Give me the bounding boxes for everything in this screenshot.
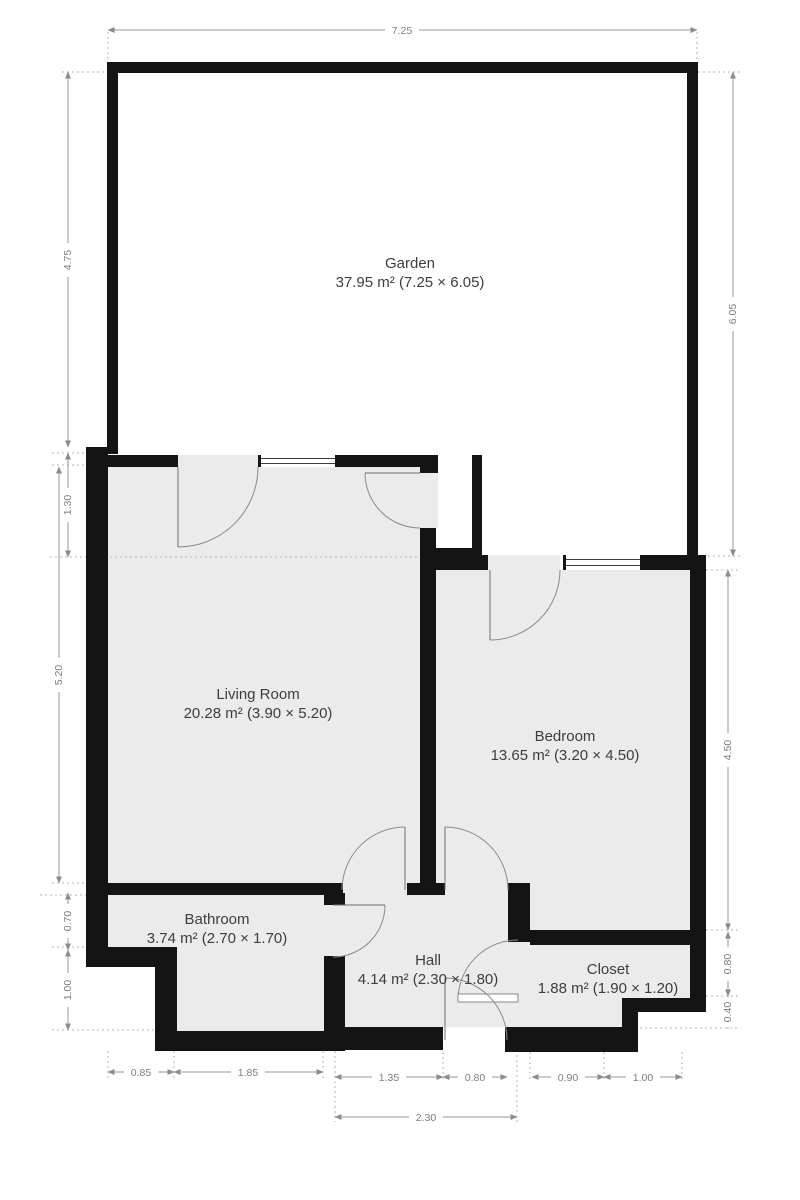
bedroom-window bbox=[563, 555, 643, 570]
living-room-area: 20.28 m² (3.90 × 5.20) bbox=[184, 705, 333, 722]
dim-left-offset: 1.30 bbox=[62, 495, 74, 516]
living-hall-threshold bbox=[343, 883, 407, 895]
dim-bottom-bath-step: 0.85 bbox=[131, 1067, 152, 1079]
dim-bottom-hall-left: 1.35 bbox=[379, 1072, 400, 1084]
closet-area: 1.88 m² (1.90 × 1.20) bbox=[538, 980, 679, 997]
bathroom-door-jamb bbox=[324, 893, 345, 905]
closet-door-threshold bbox=[508, 942, 530, 1027]
hall-area: 4.14 m² (2.30 × 1.80) bbox=[358, 971, 499, 988]
hall-wall-bottom bbox=[345, 1027, 443, 1050]
closet-floor-lower bbox=[530, 998, 622, 1030]
bathroom-area: 3.74 m² (2.70 × 1.70) bbox=[147, 930, 288, 947]
bedroom-wall-top-left bbox=[434, 555, 488, 570]
bedroom-name: Bedroom bbox=[535, 728, 596, 745]
dim-right-bedroom: 4.50 bbox=[722, 740, 734, 761]
closet-name: Closet bbox=[587, 961, 630, 978]
floor-plan: 7.25 4.75 1.30 5.20 0.70 1.00 6.05 4.50 … bbox=[0, 0, 800, 1200]
living-wall-top-left bbox=[107, 455, 178, 467]
bedroom-wall-top-right bbox=[643, 555, 690, 570]
dim-bottom-front-door: 0.80 bbox=[465, 1072, 486, 1084]
garden-wall-top bbox=[107, 62, 698, 73]
dim-bottom-closet-left: 0.90 bbox=[558, 1072, 579, 1084]
bedroom-door-threshold bbox=[488, 555, 560, 570]
house-wall-left bbox=[86, 447, 108, 947]
living-room-name: Living Room bbox=[216, 686, 299, 703]
bathroom-wall-bottom bbox=[155, 1031, 345, 1051]
dim-bottom-closet-right: 1.00 bbox=[633, 1072, 654, 1084]
garden-area: 37.95 m² (7.25 × 6.05) bbox=[336, 274, 485, 291]
garden-door-threshold bbox=[178, 455, 258, 467]
divider-foot bbox=[407, 883, 445, 895]
bedroom-area: 13.65 m² (3.20 × 4.50) bbox=[491, 747, 640, 764]
closet-wall-top bbox=[530, 930, 706, 945]
bathroom-floor-lower bbox=[177, 947, 324, 1031]
living-bedroom-divider bbox=[420, 528, 436, 885]
bathroom-wall-right bbox=[324, 956, 345, 1031]
living-room-window bbox=[258, 455, 338, 467]
dim-right-garden: 6.05 bbox=[727, 304, 739, 325]
dim-left-bath-upper: 0.70 bbox=[62, 911, 74, 932]
floor-plan-canvas: 7.25 4.75 1.30 5.20 0.70 1.00 6.05 4.50 … bbox=[0, 0, 800, 1200]
bathroom-door-threshold bbox=[324, 905, 345, 956]
living-room-floor bbox=[108, 467, 420, 883]
dim-right-closet-lower: 0.40 bbox=[722, 1002, 734, 1023]
garden-wall-right bbox=[687, 62, 698, 556]
hall-closet-divider bbox=[508, 883, 530, 942]
bedroom-hall-threshold bbox=[445, 883, 508, 895]
dim-bottom-bath: 1.85 bbox=[238, 1067, 259, 1079]
dim-left-garden: 4.75 bbox=[62, 250, 74, 271]
living-wall-bottom bbox=[86, 883, 343, 895]
dim-left-living: 5.20 bbox=[53, 665, 65, 686]
entry-door-threshold bbox=[420, 473, 438, 528]
closet-wall-bottom bbox=[505, 1027, 638, 1052]
garden-label: Garden 37.95 m² (7.25 × 6.05) bbox=[336, 255, 485, 291]
dim-left-bath-lower: 1.00 bbox=[62, 980, 74, 1001]
bathroom-name: Bathroom bbox=[184, 911, 249, 928]
dim-bottom-hall-total: 2.30 bbox=[416, 1112, 437, 1124]
entry-wall-block-top bbox=[420, 455, 438, 473]
porch-wall-right bbox=[472, 455, 482, 555]
dim-top-width: 7.25 bbox=[392, 25, 413, 37]
dim-right-closet-upper: 0.80 bbox=[722, 954, 734, 975]
hall-name: Hall bbox=[415, 952, 441, 969]
garden-wall-left bbox=[107, 62, 118, 454]
garden-name: Garden bbox=[385, 255, 435, 272]
